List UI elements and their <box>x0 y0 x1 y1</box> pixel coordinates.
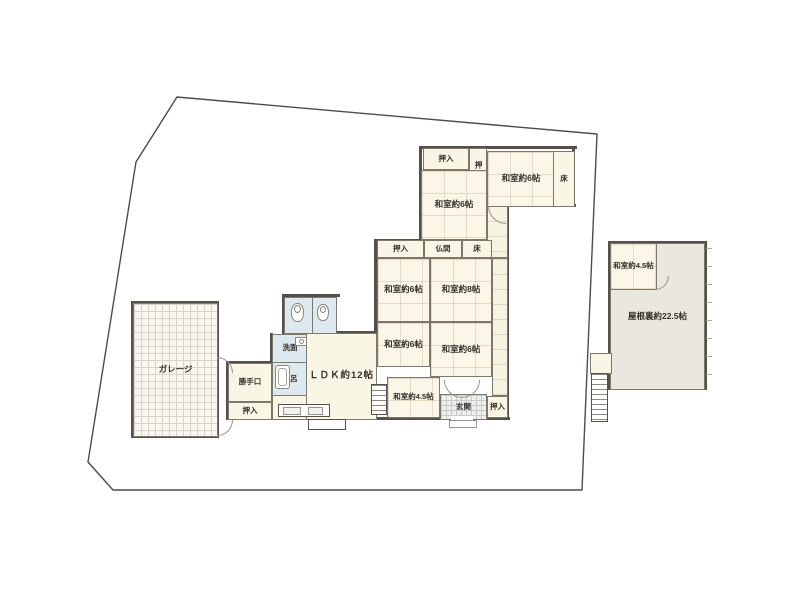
room-corridor-right <box>492 258 508 396</box>
kitchen-counter <box>278 404 330 417</box>
toilet-icon <box>317 304 329 321</box>
room-label-washitsu-6-mid-west: 和室約6帖 <box>384 285 423 294</box>
kitchen-porch-step <box>308 419 346 430</box>
room-oshiire-genkan: 押入 <box>487 396 508 418</box>
room-label-toko-top: 床 <box>560 175 568 183</box>
stove-icon <box>308 407 323 415</box>
floor-plan: ガレージ勝手口押入洗面風呂ＬＤＫ約12帖押入押入和室約6帖床和室約6帖押入仏間床… <box>0 0 800 600</box>
room-label-washitsu-6-south-east: 和室約6帖 <box>442 345 481 354</box>
room-katteguchi: 勝手口 <box>228 363 272 402</box>
room-oshiire-kitchen: 押入 <box>228 402 272 420</box>
room-label-genkan: 玄関 <box>456 403 471 411</box>
room-toko-mid: 床 <box>462 240 492 258</box>
room-washitsu-45-annex: 和室約4.5帖 <box>610 243 657 290</box>
room-label-katteguchi: 勝手口 <box>239 378 262 386</box>
room-label-yaneura-attic: 屋根裏約22.5帖 <box>628 312 687 321</box>
room-label-washitsu-45-annex: 和室約4.5帖 <box>613 262 653 270</box>
washbasin-icon <box>295 337 307 346</box>
room-oshiire-top: 押入 <box>423 148 469 170</box>
room-washitsu-8: 和室約8帖 <box>430 258 492 322</box>
room-oshiire-mid: 押入 <box>377 240 424 258</box>
room-label-washitsu-45-main: 和室約4.5帖 <box>393 393 433 401</box>
room-label-washitsu-6-top-left: 和室約6帖 <box>435 200 474 209</box>
room-garage: ガレージ <box>133 303 218 437</box>
room-washitsu-6-south-east: 和室約6帖 <box>430 322 492 377</box>
room-label-oshiire-genkan: 押入 <box>490 403 505 411</box>
room-label-oshiire-kitchen: 押入 <box>243 407 258 415</box>
room-label-washitsu-8: 和室約8帖 <box>442 285 481 294</box>
room-label-oshiire-mid: 押入 <box>393 245 408 253</box>
room-washitsu-6-top-left: 和室約6帖 <box>421 170 487 240</box>
room-label-oshiire-top: 押入 <box>439 155 454 163</box>
room-annex-stair-landing <box>590 353 612 374</box>
kitchen-sink-icon <box>283 407 301 415</box>
room-label-garage: ガレージ <box>159 365 193 374</box>
room-washitsu-6-top-right: 和室約6帖 <box>487 151 555 207</box>
room-butsuma: 仏間 <box>424 240 462 258</box>
room-label-butsuma: 仏間 <box>436 245 451 253</box>
stairs-annex <box>591 373 608 422</box>
stairs-main <box>371 384 387 415</box>
room-toko-top: 床 <box>553 151 575 207</box>
room-label-washitsu-6-top-right: 和室約6帖 <box>502 174 541 183</box>
room-label-washitsu-6-south-west: 和室約6帖 <box>384 340 423 349</box>
room-label-toko-mid: 床 <box>473 245 481 253</box>
bathtub-icon <box>275 365 290 389</box>
room-label-ldk: ＬＤＫ約12帖 <box>309 371 374 381</box>
annex-window-ticks <box>706 248 712 386</box>
entrance-step <box>449 420 477 428</box>
room-washitsu-6-south-west: 和室約6帖 <box>377 322 430 367</box>
room-washitsu-6-mid-west: 和室約6帖 <box>377 258 430 322</box>
room-washitsu-45-main: 和室約4.5帖 <box>387 377 440 418</box>
toilet-icon <box>291 303 304 322</box>
